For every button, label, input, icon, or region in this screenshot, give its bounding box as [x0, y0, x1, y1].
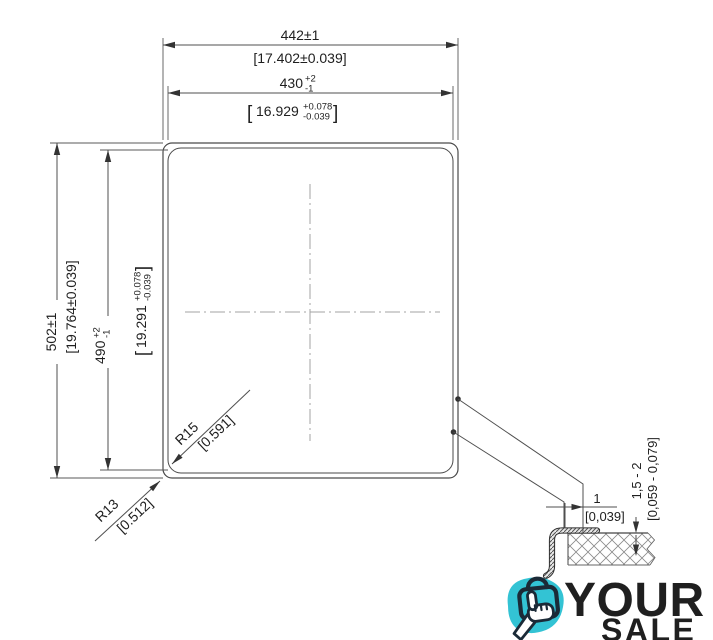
dimension-height-inner: 490 +2 -1 [ 19.291 +0.078 -0.039 ] — [92, 150, 169, 470]
arrowhead — [441, 90, 453, 96]
leader-line — [454, 432, 565, 528]
dim-depth-value: 1,5 - 2 — [629, 463, 644, 500]
dim-width-inner-value: 430 — [280, 75, 304, 91]
arrowhead — [54, 466, 60, 478]
dim-height-inner-alt-value: 19.291 — [133, 305, 149, 348]
radius-inner-alt: [0.591] — [195, 412, 237, 453]
dim-width-outer-alt: [17.402±0.039] — [253, 50, 346, 66]
dim-height-inner-alt-tol-minus: -0.039 — [143, 274, 154, 301]
technical-drawing: 442±1 [17.402±0.039] 430 +2 -1 [ 16.929 … — [0, 0, 713, 640]
dim-height-outer-value: 502±1 — [43, 312, 59, 351]
dim-width-inner-tol-minus: -1 — [305, 84, 313, 95]
radius-outer-alt: [0.512] — [113, 495, 155, 536]
arrowhead — [633, 522, 639, 534]
arrowhead — [105, 150, 111, 162]
dim-width-outer-value: 442±1 — [281, 27, 320, 43]
logo-word-bottom: SALE — [601, 612, 696, 640]
brand-logo: YOUR SALE — [508, 574, 705, 640]
arrowhead — [105, 458, 111, 470]
bracket-close: ] — [333, 103, 338, 124]
dim-gap-value: 1 — [593, 491, 600, 506]
dim-gap-alt: [0,039] — [585, 509, 625, 524]
arrowhead — [163, 42, 175, 48]
drawing-page: 442±1 [17.402±0.039] 430 +2 -1 [ 16.929 … — [0, 0, 713, 640]
bracket-open: [ — [247, 103, 253, 124]
dimension-width-inner: 430 +2 -1 [ 16.929 +0.078 -0.039 ] — [168, 74, 453, 141]
dim-depth-alt: [0,059 - 0,079] — [645, 437, 660, 521]
arrowhead — [572, 504, 584, 510]
arrowhead — [168, 90, 180, 96]
bracket-open: [ — [133, 351, 153, 356]
cross-section-detail: 1 [0,039] 1,5 - 2 [0,059 - 0,079] — [546, 437, 660, 576]
dim-height-inner-alt-text: [ 19.291 +0.078 -0.039 ] — [133, 266, 154, 356]
section-leaders — [451, 396, 583, 532]
countertop-hatch — [568, 533, 655, 565]
dim-width-inner-alt-value: 16.929 — [256, 103, 299, 119]
arrowhead — [54, 143, 60, 155]
radius-callout-inner: R15 [0.591] — [172, 390, 250, 464]
radius-callout-outer: R13 [0.512] — [92, 481, 160, 541]
dim-height-inner-value: 490 — [92, 340, 108, 364]
arrowhead — [446, 42, 458, 48]
dimension-rim-gap: 1 [0,039] — [546, 491, 625, 524]
dim-height-outer-alt: [19.764±0.039] — [63, 260, 79, 353]
dim-height-inner-tol-minus: -1 — [102, 330, 113, 338]
section-extension-lines — [565, 488, 583, 533]
bracket-close: ] — [133, 266, 153, 271]
dim-width-inner-alt-tol-minus: -0.039 — [303, 112, 330, 123]
